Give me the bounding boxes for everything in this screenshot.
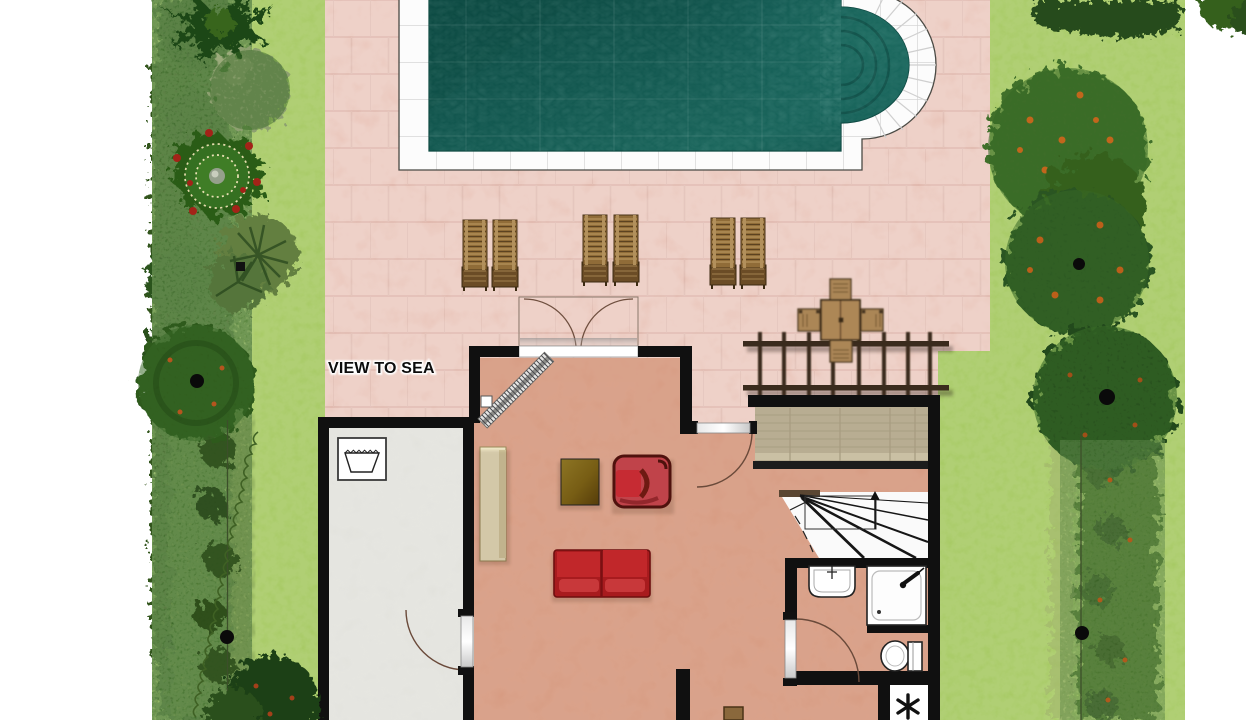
- svg-text:VIEW TO SEA: VIEW TO SEA: [328, 360, 435, 377]
